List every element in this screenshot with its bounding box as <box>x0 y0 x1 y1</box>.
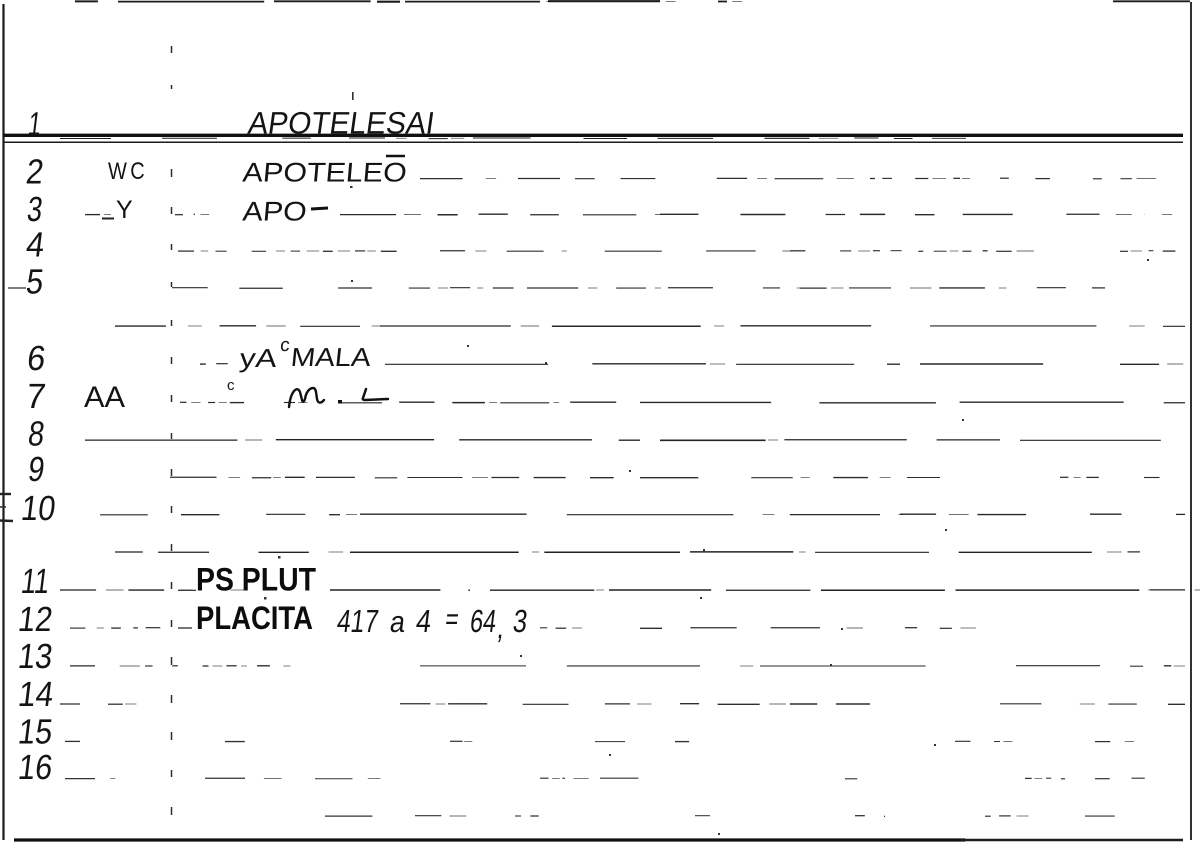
svg-text:APOTELEO: APOTELEO <box>241 158 408 188</box>
svg-text:APOTELESAI: APOTELESAI <box>246 106 437 141</box>
svg-text:417: 417 <box>335 603 380 639</box>
svg-text:10: 10 <box>19 489 58 528</box>
svg-text:64: 64 <box>468 603 498 639</box>
svg-text:APO: APO <box>241 197 308 227</box>
svg-text:AA: AA <box>84 381 125 414</box>
svg-text:PLACITA: PLACITA <box>196 600 313 636</box>
svg-text:12: 12 <box>16 600 55 639</box>
svg-text:WC: WC <box>108 158 148 185</box>
svg-text:Y: Y <box>116 196 133 224</box>
svg-text:11: 11 <box>19 562 52 601</box>
svg-text:16: 16 <box>16 748 55 787</box>
svg-text:15: 15 <box>16 713 55 752</box>
svg-text:PS PLUT: PS PLUT <box>196 562 316 598</box>
svg-text:c: c <box>227 377 235 394</box>
svg-text:MALA: MALA <box>289 342 373 372</box>
svg-text:13: 13 <box>16 637 55 676</box>
svg-text:14: 14 <box>16 675 56 714</box>
svg-text:yA: yA <box>238 343 279 373</box>
